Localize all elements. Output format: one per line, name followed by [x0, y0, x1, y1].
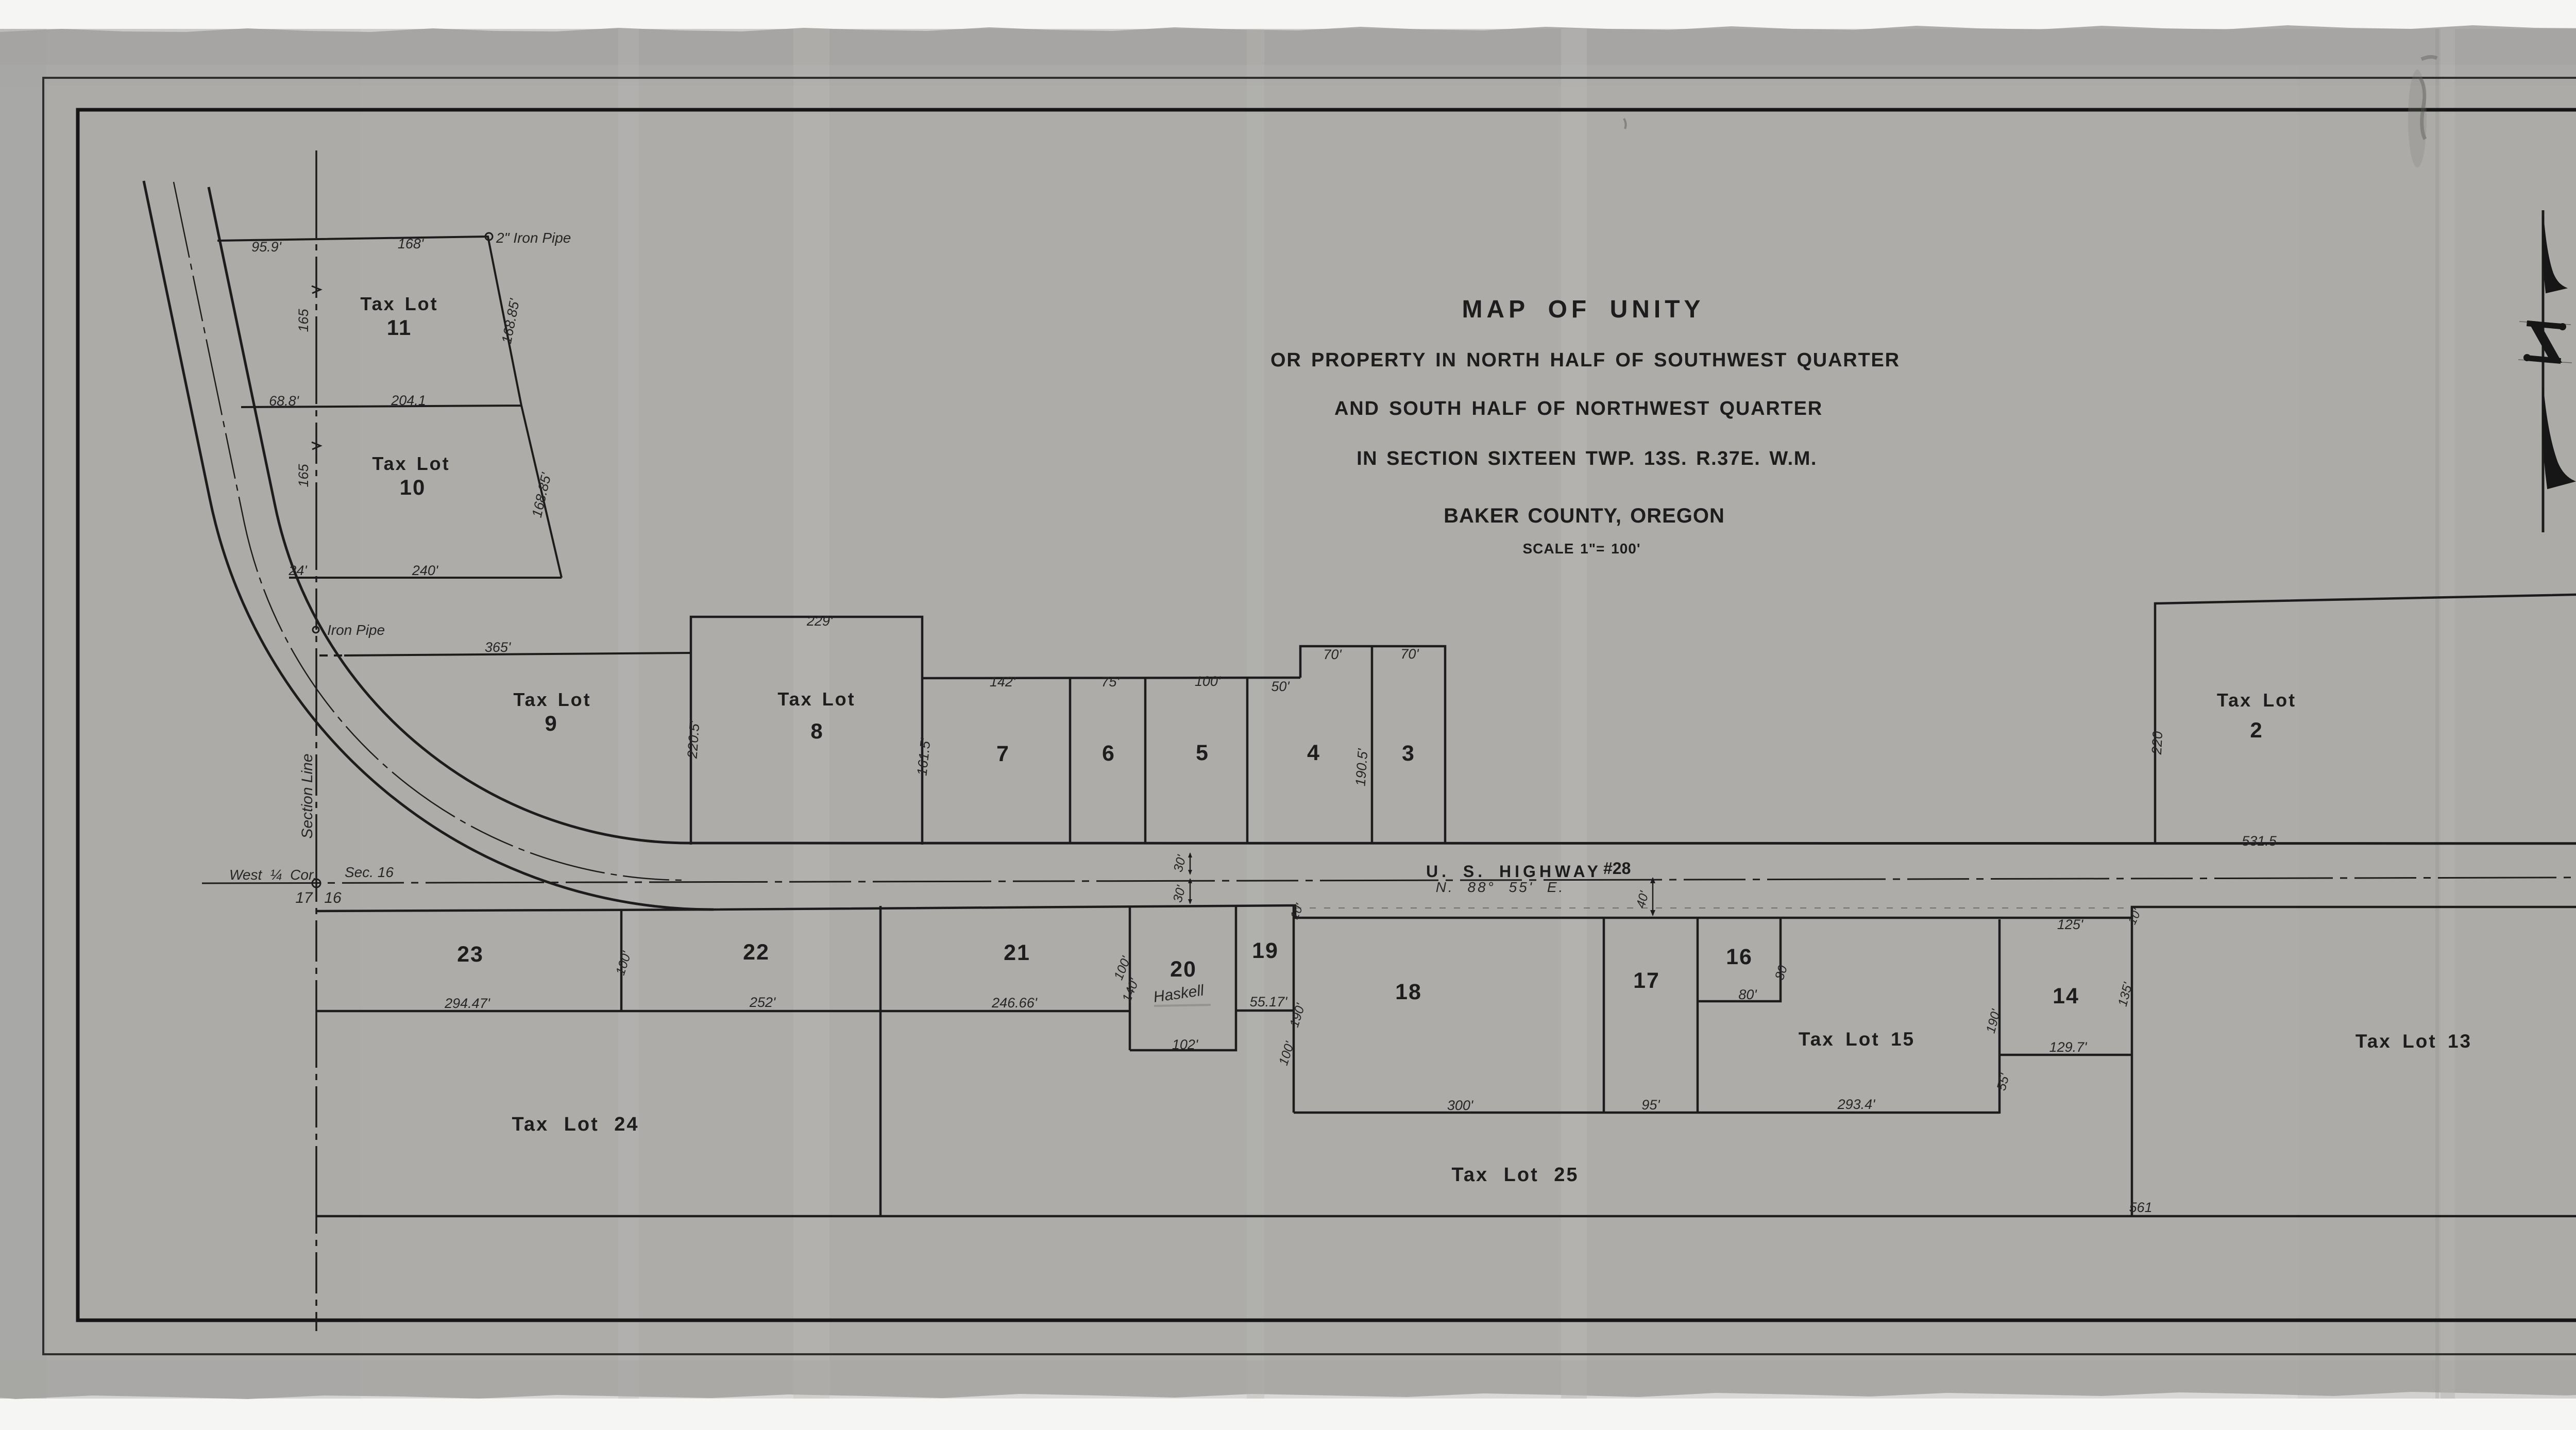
svg-text:5: 5 — [1196, 741, 1209, 765]
svg-text:9: 9 — [545, 711, 557, 735]
svg-text:MAP OF UNITY: MAP OF UNITY — [1462, 296, 1704, 323]
svg-text:95.9': 95.9' — [251, 239, 282, 255]
svg-text:75': 75' — [1101, 674, 1120, 689]
svg-text:17: 17 — [1633, 968, 1660, 993]
svg-text:55.17': 55.17' — [1250, 994, 1288, 1010]
svg-text:Iron Pipe: Iron Pipe — [327, 622, 385, 638]
svg-text:Tax Lot: Tax Lot — [2217, 689, 2296, 711]
svg-text:18: 18 — [1395, 980, 1422, 1004]
svg-text:Tax Lot: Tax Lot — [372, 453, 450, 474]
svg-text:80': 80' — [1738, 987, 1757, 1002]
svg-text:16: 16 — [1726, 945, 1753, 969]
svg-text:BAKER COUNTY, OREGON: BAKER COUNTY, OREGON — [1444, 504, 1725, 527]
svg-text:204.1: 204.1 — [391, 393, 426, 408]
svg-text:68.8': 68.8' — [269, 393, 299, 409]
svg-text:125': 125' — [2057, 917, 2083, 932]
svg-text:129.7': 129.7' — [2049, 1039, 2088, 1055]
svg-text:11: 11 — [387, 315, 412, 340]
svg-text:100': 100' — [1195, 674, 1221, 689]
svg-text:8: 8 — [810, 719, 823, 743]
svg-text:2" Iron Pipe: 2" Iron Pipe — [496, 230, 571, 246]
svg-text:240': 240' — [412, 563, 438, 578]
svg-text:142': 142' — [990, 674, 1016, 689]
svg-text:16: 16 — [324, 889, 342, 906]
svg-text:10: 10 — [400, 475, 426, 499]
svg-text:165: 165 — [296, 308, 311, 332]
svg-text:70': 70' — [1400, 646, 1419, 662]
svg-text:7: 7 — [996, 742, 1010, 766]
svg-text:294.47': 294.47' — [444, 996, 490, 1011]
svg-text:220: 220 — [2149, 731, 2165, 755]
svg-text:Tax Lot: Tax Lot — [360, 293, 438, 314]
svg-text:6: 6 — [1102, 741, 1115, 766]
svg-text:West ¼ Cor.: West ¼ Cor. — [229, 867, 317, 883]
svg-text:229': 229' — [806, 613, 833, 629]
svg-text:AND SOUTH HALF OF NORTHWEST QU: AND SOUTH HALF OF NORTHWEST QUARTER — [1334, 398, 1823, 419]
svg-text:20: 20 — [1170, 957, 1197, 982]
svg-text:IN SECTION SIXTEEN TWP. 13S. R: IN SECTION SIXTEEN TWP. 13S. R.37E. W.M. — [1357, 448, 1817, 469]
svg-text:102': 102' — [1172, 1037, 1198, 1052]
svg-text:SCALE 1"= 100': SCALE 1"= 100' — [1522, 541, 1640, 557]
svg-text:220.5': 220.5' — [684, 720, 702, 759]
svg-text:168': 168' — [398, 236, 424, 251]
svg-text:300': 300' — [1447, 1098, 1473, 1113]
svg-text:14: 14 — [2053, 984, 2079, 1008]
svg-text:21: 21 — [1004, 940, 1030, 965]
svg-text:561: 561 — [2129, 1200, 2152, 1215]
svg-text:U. S. HIGHWAY: U. S. HIGHWAY — [1426, 862, 1602, 881]
svg-text:OR PROPERTY IN NORTH HALF OF S: OR PROPERTY IN NORTH HALF OF SOUTHWEST Q… — [1270, 349, 1900, 371]
svg-text:23: 23 — [457, 942, 484, 967]
svg-text:Tax Lot 25: Tax Lot 25 — [1451, 1164, 1579, 1186]
svg-text:165: 165 — [296, 463, 311, 487]
svg-text:95': 95' — [1641, 1097, 1660, 1113]
svg-text:293.4': 293.4' — [1837, 1097, 1876, 1112]
svg-text:50': 50' — [1271, 679, 1290, 694]
svg-text:Tax Lot 15: Tax Lot 15 — [1799, 1029, 1915, 1050]
svg-text:Section Line: Section Line — [299, 753, 316, 838]
svg-text:4: 4 — [1307, 741, 1320, 765]
svg-text:17: 17 — [295, 889, 313, 906]
svg-text:70': 70' — [1323, 647, 1342, 662]
svg-text:Sec. 16: Sec. 16 — [345, 864, 394, 880]
svg-text:#28: #28 — [1603, 859, 1631, 878]
svg-text:531.5: 531.5 — [2242, 833, 2277, 849]
svg-text:19: 19 — [1252, 938, 1279, 963]
svg-text:Tax Lot: Tax Lot — [777, 688, 855, 710]
svg-text:252': 252' — [749, 995, 776, 1010]
svg-text:Tax Lot: Tax Lot — [513, 689, 591, 710]
svg-text:2: 2 — [2250, 718, 2263, 742]
svg-text:365': 365' — [485, 640, 511, 655]
svg-text:3: 3 — [1402, 741, 1415, 766]
svg-text:190.5': 190.5' — [1353, 748, 1371, 786]
svg-text:22: 22 — [743, 940, 770, 965]
svg-text:Tax Lot 24: Tax Lot 24 — [512, 1114, 639, 1135]
svg-text:246.66': 246.66' — [991, 995, 1038, 1011]
svg-text:N. 88° 55' E.: N. 88° 55' E. — [1436, 879, 1565, 895]
svg-text:24': 24' — [288, 563, 307, 578]
svg-text:Tax Lot 13: Tax Lot 13 — [2355, 1031, 2472, 1052]
